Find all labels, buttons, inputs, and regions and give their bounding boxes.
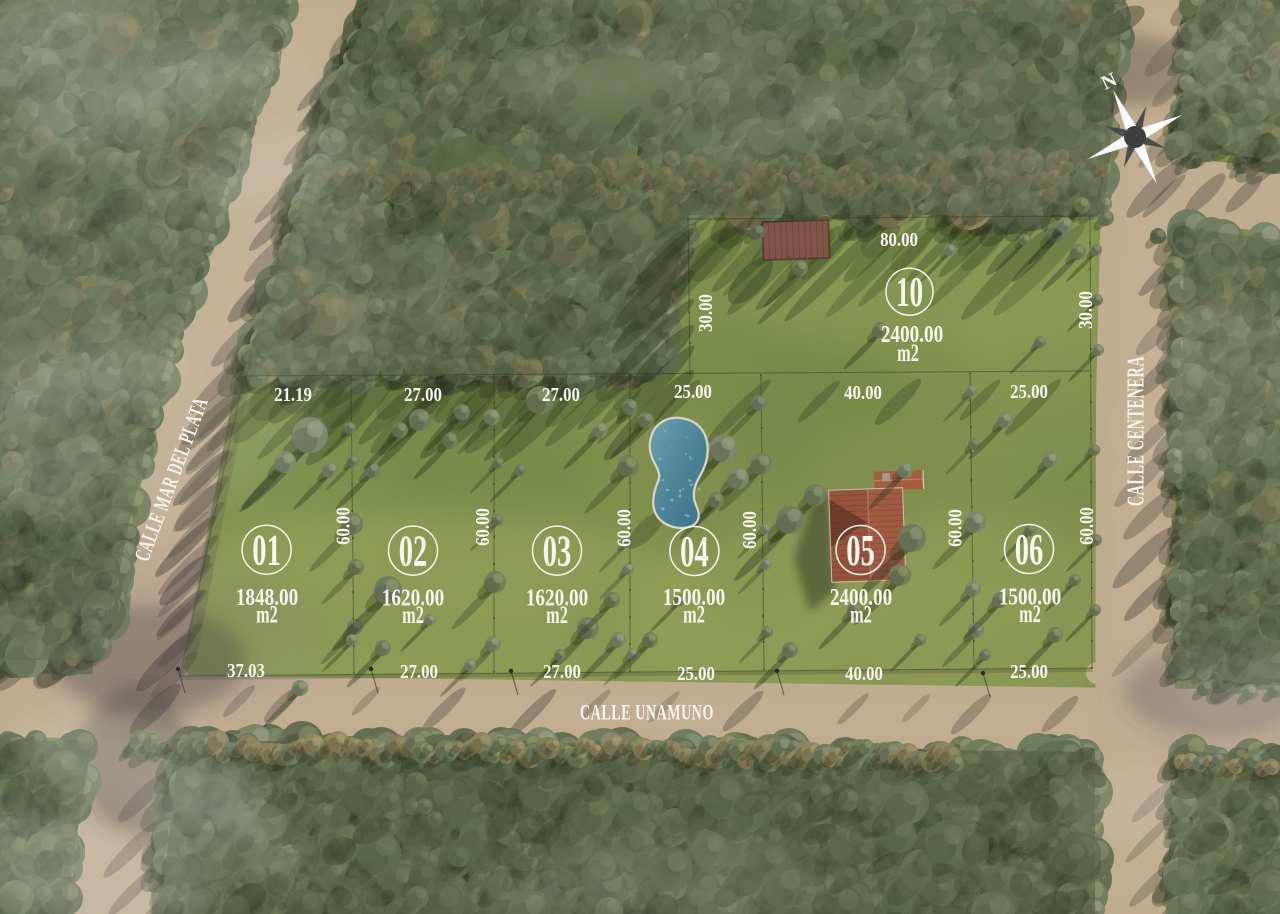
svg-text:m2: m2	[402, 600, 424, 628]
svg-text:60.00: 60.00	[332, 507, 354, 545]
svg-text:m2: m2	[683, 600, 705, 628]
svg-text:60.00: 60.00	[613, 509, 635, 547]
svg-text:60.00: 60.00	[1075, 507, 1097, 545]
svg-text:30.00: 30.00	[694, 294, 716, 332]
svg-text:10: 10	[896, 268, 923, 315]
svg-text:CALLE CENTENERA: CALLE CENTENERA	[1123, 356, 1150, 506]
svg-text:m2: m2	[256, 600, 278, 628]
svg-text:60.00: 60.00	[471, 508, 493, 546]
svg-text:40.00: 40.00	[844, 381, 882, 403]
svg-text:37.03: 37.03	[227, 659, 265, 681]
svg-text:40.00: 40.00	[845, 662, 883, 684]
svg-text:21.19: 21.19	[274, 383, 312, 405]
svg-text:25.00: 25.00	[1010, 380, 1048, 402]
svg-text:27.00: 27.00	[404, 383, 442, 405]
svg-text:03: 03	[543, 528, 572, 577]
svg-text:25.00: 25.00	[677, 662, 715, 684]
svg-text:60.00: 60.00	[944, 509, 966, 547]
svg-text:m2: m2	[897, 338, 919, 366]
svg-text:m2: m2	[546, 600, 568, 628]
svg-text:02: 02	[399, 528, 428, 577]
svg-text:80.00: 80.00	[880, 228, 918, 250]
svg-text:30.00: 30.00	[1074, 291, 1096, 329]
svg-text:05: 05	[846, 527, 875, 576]
svg-text:m2: m2	[850, 600, 872, 628]
svg-text:27.00: 27.00	[543, 660, 581, 682]
svg-text:04: 04	[680, 528, 709, 577]
svg-text:06: 06	[1015, 526, 1044, 575]
svg-text:27.00: 27.00	[542, 383, 580, 405]
svg-text:25.00: 25.00	[674, 380, 712, 402]
svg-text:27.00: 27.00	[400, 660, 438, 682]
svg-text:CALLE UNAMUNO: CALLE UNAMUNO	[580, 700, 714, 725]
svg-text:25.00: 25.00	[1010, 660, 1048, 682]
svg-text:m2: m2	[1019, 599, 1041, 627]
svg-text:01: 01	[252, 527, 281, 576]
svg-text:60.00: 60.00	[738, 511, 760, 549]
